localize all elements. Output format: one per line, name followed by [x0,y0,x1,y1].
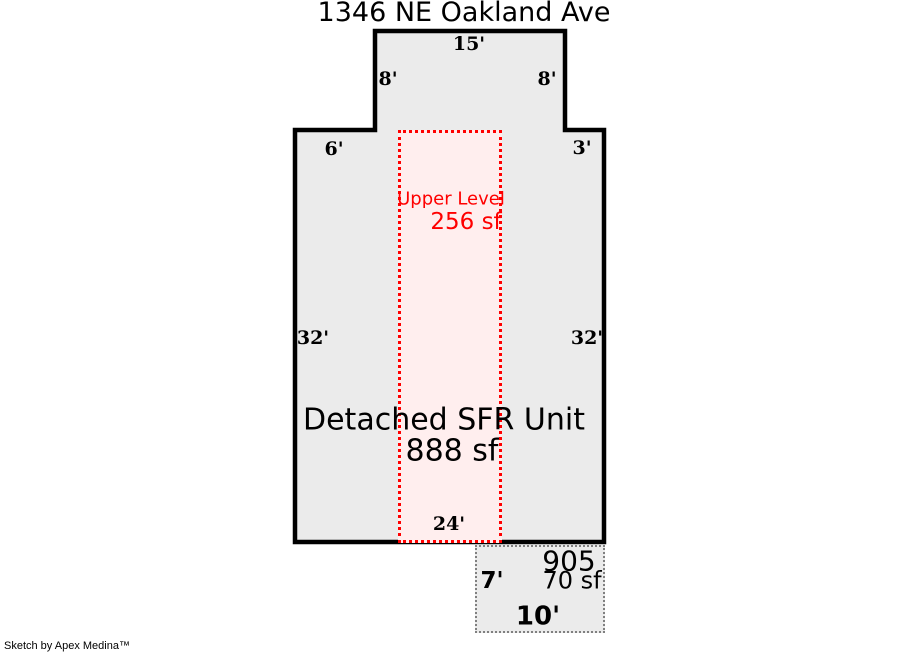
porch-side-height: 7' [480,569,503,593]
porch-area: 70 sf [542,568,601,593]
page-title: 1346 NE Oakland Ave [318,0,611,27]
dim-right-height: 32' [571,329,603,349]
sketch-credit: Sketch by Apex Medina™ [4,641,130,653]
main-unit-area: 888 sf [406,435,499,467]
upper-level-area: 256 sf [430,210,501,234]
dim-upper-left-height: 8' [378,70,397,90]
dim-left-height: 32' [297,329,329,349]
main-unit-label: Detached SFR Unit [303,404,585,436]
dim-upper-right-height: 8' [537,70,556,90]
porch-bottom-width: 10' [516,603,560,630]
dim-left-offset: 6' [324,140,343,160]
dim-bottom-width: 24' [433,515,465,535]
sketch-canvas: 1346 NE Oakland Ave 15' 8' 8' 6' 3' 32' … [0,0,900,660]
dim-top-width: 15' [453,35,485,55]
dim-right-offset: 3' [572,139,591,159]
upper-level-label: Upper Level [397,191,505,210]
